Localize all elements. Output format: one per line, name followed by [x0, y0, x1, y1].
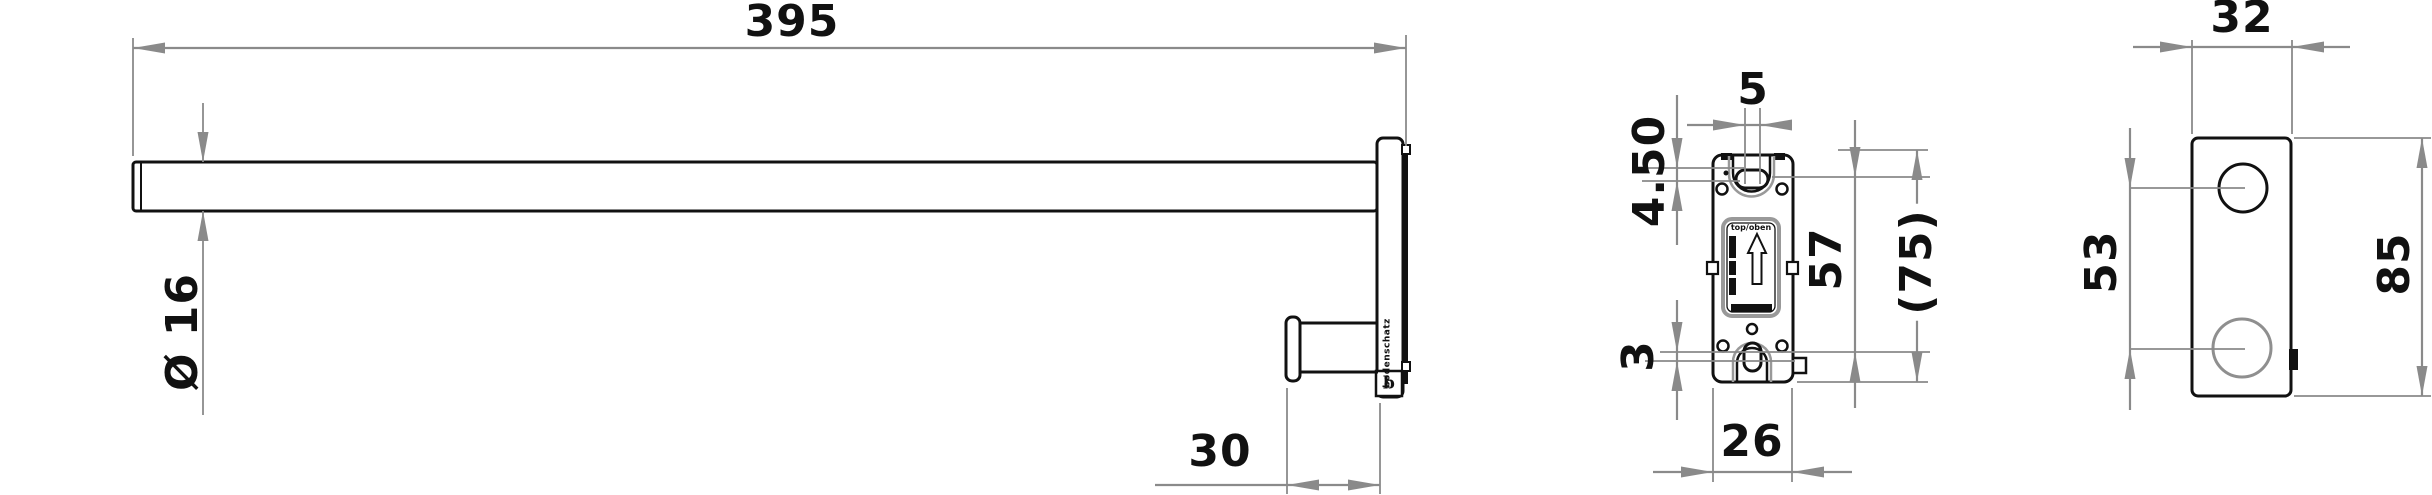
dim-bottom-offset-3: 3 — [1617, 340, 1661, 372]
dim-length-395: 395 — [745, 0, 840, 44]
dim-width-26: 26 — [1720, 420, 1783, 464]
dim-depth-32: 32 — [2210, 0, 2273, 40]
label-fine-print — [1729, 236, 1736, 258]
dim-edge-to-slot-450: 4.50 — [1628, 115, 1672, 228]
side-view-part — [133, 138, 1410, 397]
label-fine-print — [1729, 261, 1736, 275]
label-top-oben-text: top/oben — [1731, 224, 1771, 232]
front-view-part — [1707, 153, 1806, 382]
pin-hole — [1724, 171, 1729, 176]
technical-drawing: 395 Ø 16 30 5 4.50 57 (75) 3 26 32 53 85… — [0, 0, 2432, 495]
end-view-part — [2192, 138, 2297, 396]
dim-diameter-16: Ø 16 — [161, 273, 205, 391]
dim-hook-offset-30: 30 — [1188, 430, 1251, 474]
dim-hole-spacing-57: 57 — [1805, 227, 1849, 290]
drawing-geometry — [0, 0, 2432, 495]
dim-height-85: 85 — [2373, 232, 2417, 295]
label-fine-print — [1731, 304, 1772, 312]
dim-hole-spacing-53: 53 — [2080, 230, 2124, 293]
label-fine-print — [1729, 278, 1736, 295]
brand-logo-glyph: b — [1383, 376, 1395, 393]
dim-reference-height-75: (75) — [1895, 203, 1939, 320]
dim-slot-width-5: 5 — [1737, 68, 1769, 112]
hook-end-cap — [1286, 317, 1300, 381]
